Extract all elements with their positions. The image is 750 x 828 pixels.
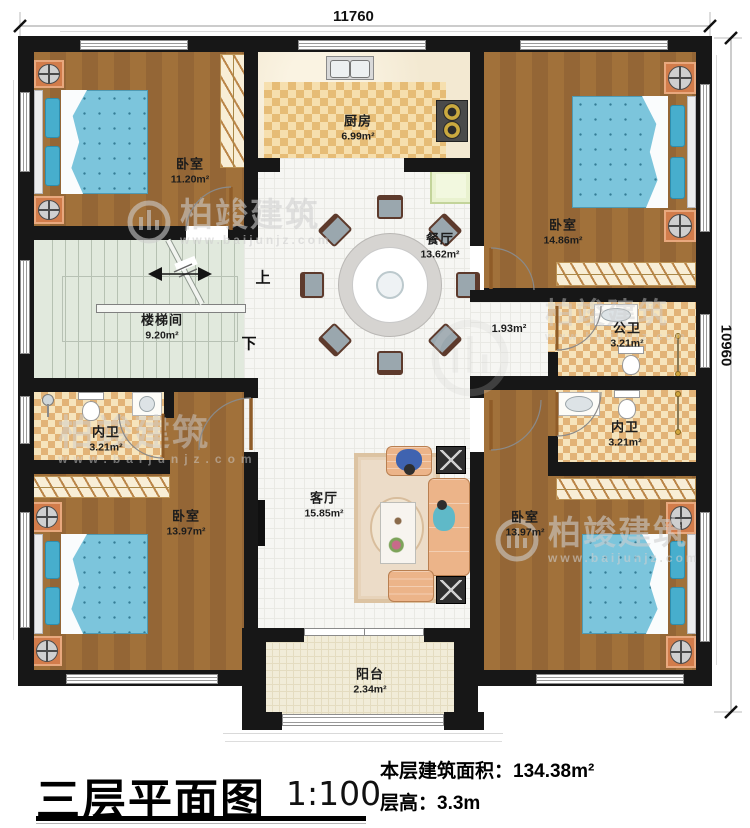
towel-rail: [677, 394, 679, 432]
wall: [244, 158, 280, 172]
balcony-railing-window: [282, 714, 444, 726]
wall: [470, 290, 484, 302]
stair-railing: [96, 304, 246, 313]
toilet-tank: [78, 392, 104, 400]
floor-plan: 柏竣建筑 www.baijunjz.com 柏竣建筑 www.baijunjz.…: [0, 0, 750, 760]
corridor-floor: [470, 302, 556, 376]
nightstand: [34, 60, 64, 88]
sink: [132, 392, 162, 416]
nightstand: [664, 210, 696, 242]
room-label-bedroom-tr: 卧室14.86m²: [543, 218, 582, 249]
floor-area-line: 本层建筑面积：134.38m²: [380, 756, 594, 783]
nightstand: [666, 636, 696, 668]
toilet-bowl: [622, 355, 640, 375]
sill-line: [60, 31, 690, 32]
toilet: [614, 390, 640, 419]
window: [700, 314, 710, 368]
dimension-height: 10960: [717, 325, 734, 367]
toilet-tank: [614, 390, 640, 398]
room-label-kitchen: 厨房6.99m²: [341, 114, 374, 145]
chair: [377, 351, 403, 375]
floor-height-value: 3.3m: [437, 793, 480, 814]
pillow: [45, 587, 60, 625]
room-label-bedroom-br: 卧室13.97m²: [505, 510, 544, 541]
wall: [258, 628, 304, 642]
pillow: [670, 541, 685, 579]
sink: [558, 392, 600, 416]
floor-height-line: 层高：3.3m: [380, 788, 480, 815]
stair-down-label: 下: [241, 333, 256, 354]
wall: [164, 392, 174, 418]
window: [20, 260, 30, 354]
room-label-bedroom-tl: 卧室11.20m²: [171, 157, 210, 188]
wall: [548, 352, 558, 378]
room-label-bedroom-bl: 卧室13.97m²: [166, 509, 205, 540]
wardrobe: [556, 262, 696, 286]
window: [536, 674, 684, 684]
title-underline: [36, 816, 366, 821]
pillow: [670, 105, 685, 147]
bed-headboard: [34, 90, 43, 194]
nightstand: [666, 502, 696, 534]
dimension-width: 11760: [333, 8, 374, 25]
towel-rail: [677, 336, 679, 374]
toilet-bowl: [82, 401, 100, 421]
bed: [582, 534, 696, 634]
wardrobe: [30, 476, 170, 498]
armchair: [388, 570, 434, 602]
side-table: [436, 576, 466, 604]
window: [20, 396, 30, 444]
pillow: [45, 541, 60, 579]
window: [20, 512, 30, 628]
room-label-bath-public: 公卫3.21m²: [610, 321, 643, 352]
floor-area-label: 本层建筑面积：: [380, 761, 513, 782]
window: [66, 674, 218, 684]
wall: [404, 158, 470, 172]
wall: [470, 390, 484, 398]
bed: [572, 96, 696, 208]
window: [520, 40, 668, 50]
sill-line: [13, 80, 14, 640]
sill-line: [223, 733, 503, 734]
dining-table-center: [376, 271, 404, 299]
wall: [228, 226, 258, 240]
window: [700, 84, 710, 232]
toilet-bowl: [618, 399, 636, 419]
bed: [34, 534, 148, 634]
room-label-corridor: 1.93m²: [492, 322, 527, 336]
wardrobe: [220, 54, 246, 168]
toilet: [78, 392, 104, 421]
nightstand: [34, 196, 64, 224]
wall: [484, 288, 696, 302]
wall: [444, 712, 484, 730]
nightstand: [664, 62, 696, 94]
wall: [18, 378, 258, 392]
room-label-bath-right: 内卫3.21m²: [608, 420, 641, 451]
side-table: [436, 446, 466, 474]
pillow: [45, 98, 60, 138]
pillow: [45, 146, 60, 186]
wall: [424, 628, 470, 642]
room-label-living: 客厅15.85m²: [304, 491, 343, 522]
coffee-table: [380, 502, 416, 564]
chair: [300, 272, 324, 298]
bed-headboard: [34, 534, 43, 634]
nightstand: [32, 636, 62, 666]
shower-head: [42, 394, 54, 406]
room-label-balcony: 阳台2.34m²: [353, 667, 386, 698]
wall: [548, 462, 696, 476]
nightstand: [32, 502, 62, 532]
window: [20, 92, 30, 172]
window: [700, 512, 710, 642]
sliding-door: [304, 628, 424, 636]
bed-headboard: [687, 534, 696, 634]
room-label-bath-left: 内卫3.21m²: [89, 425, 122, 456]
title-block: 三层平面图 1:100 本层建筑面积：134.38m² 层高：3.3m: [0, 738, 750, 824]
room-label-stairwell: 楼梯间9.20m²: [141, 313, 183, 344]
wall: [548, 436, 558, 464]
chair: [377, 195, 403, 219]
wall: [470, 376, 696, 390]
floor-height-label: 层高：: [380, 793, 437, 814]
wall: [470, 50, 484, 172]
person-head: [437, 500, 447, 510]
wall: [18, 226, 186, 240]
tv: [258, 500, 265, 546]
plan-scale: 1:100: [286, 774, 381, 813]
bed-headboard: [687, 96, 696, 208]
window: [80, 40, 188, 50]
room-label-dining: 餐厅13.62m²: [420, 232, 459, 263]
kitchen-sink: [326, 56, 374, 80]
floor-area-value: 134.38m²: [513, 761, 594, 782]
refrigerator: [430, 168, 472, 204]
wardrobe: [556, 478, 696, 500]
bed: [34, 90, 148, 194]
divider-line: [225, 741, 502, 742]
stove: [436, 100, 468, 142]
pillow: [670, 157, 685, 199]
wall: [244, 390, 258, 398]
person-head: [404, 464, 415, 475]
wall: [470, 172, 484, 246]
stair-up-label: 上: [255, 267, 270, 288]
wall: [244, 50, 258, 240]
window: [298, 40, 426, 50]
wall: [18, 460, 170, 474]
pillow: [670, 587, 685, 625]
wall: [242, 712, 282, 730]
